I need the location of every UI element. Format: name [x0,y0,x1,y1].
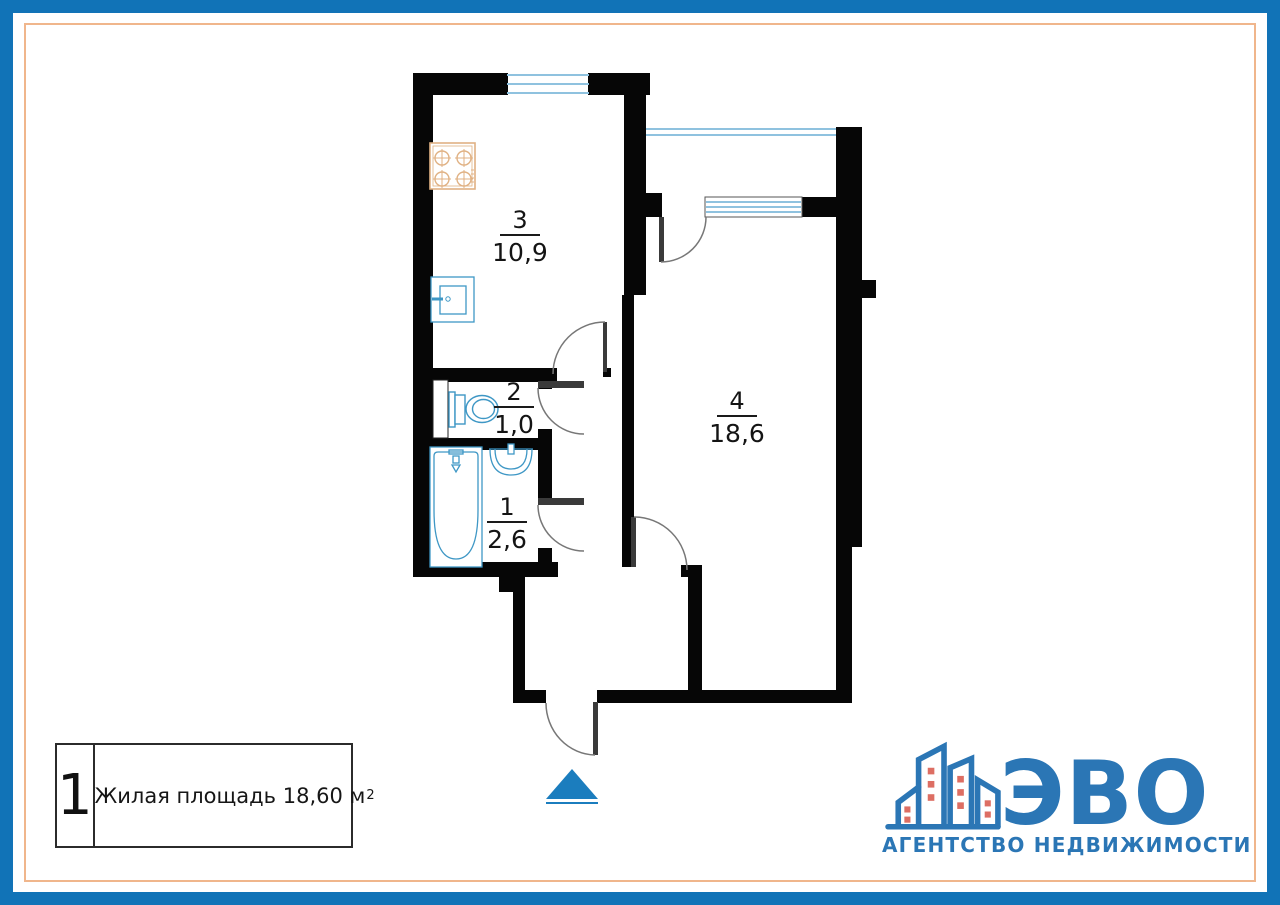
room-number: 4 [697,388,777,414]
legend-box: 1 Жилая площадь 18,60 м2 [55,743,353,848]
flat-number: 1 [57,745,95,846]
room-label-rule [487,521,527,523]
living-area-text: Жилая площадь 18,60 м [95,784,366,808]
room-label-rule [494,406,534,408]
buildings-logo-icon [884,731,1002,833]
room-number: 2 [474,379,554,405]
room-label-bathroom: 1 2,6 [467,494,547,553]
stove-icon [430,143,475,189]
living-room-window [705,197,802,217]
logo-subtitle: АГЕНТСТВО НЕДВИЖИМОСТИ [882,833,1228,857]
room-area: 18,6 [697,420,777,447]
door-leaves [538,217,664,755]
living-area-sup: 2 [366,788,374,803]
washbasin-icon [489,444,533,475]
room-label-toilet: 2 1,0 [474,379,554,438]
room-label-rule [717,415,757,417]
room-label-rule [500,234,540,236]
logo-title: ЭВО [1000,750,1209,838]
room-area: 10,9 [480,239,560,266]
duct [433,380,448,438]
living-area-label: Жилая площадь 18,60 м2 [95,745,375,846]
room-number: 1 [467,494,547,520]
floor-plan-page: { "frame": { "outer_border_color": "#117… [0,0,1280,905]
room-number: 3 [480,207,560,233]
room-area: 2,6 [467,526,547,553]
kitchen-sink-icon [431,277,474,322]
room-label-kitchen: 3 10,9 [480,207,560,266]
entrance-arrow-icon [546,769,598,803]
room-area: 1,0 [474,411,554,438]
room-label-living-room: 4 18,6 [697,388,777,447]
windows [507,75,836,135]
